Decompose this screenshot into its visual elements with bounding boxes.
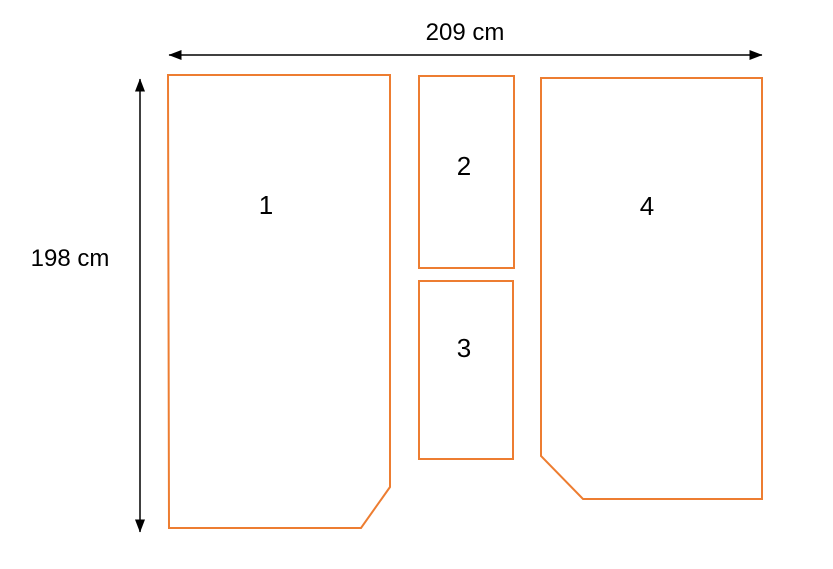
panel-1: 1 xyxy=(168,75,390,528)
layout-diagram: 209 cm 198 cm 1 2 3 4 xyxy=(0,0,833,569)
panel-4: 4 xyxy=(541,78,762,499)
height-dimension-label: 198 cm xyxy=(31,245,110,272)
diagram-canvas: 209 cm 198 cm 1 2 3 4 xyxy=(0,0,833,569)
width-dimension: 209 cm xyxy=(169,19,762,55)
panel-3-label: 3 xyxy=(457,333,471,363)
width-dimension-label: 209 cm xyxy=(426,19,505,46)
panel-4-outline xyxy=(541,78,762,499)
panel-4-label: 4 xyxy=(640,191,654,221)
panel-2-label: 2 xyxy=(457,151,471,181)
height-dimension: 198 cm xyxy=(31,79,140,532)
panel-3-outline xyxy=(419,281,513,459)
panel-2: 2 xyxy=(419,76,514,268)
panel-1-outline xyxy=(168,75,390,528)
panel-1-label: 1 xyxy=(259,190,273,220)
panel-3: 3 xyxy=(419,281,513,459)
